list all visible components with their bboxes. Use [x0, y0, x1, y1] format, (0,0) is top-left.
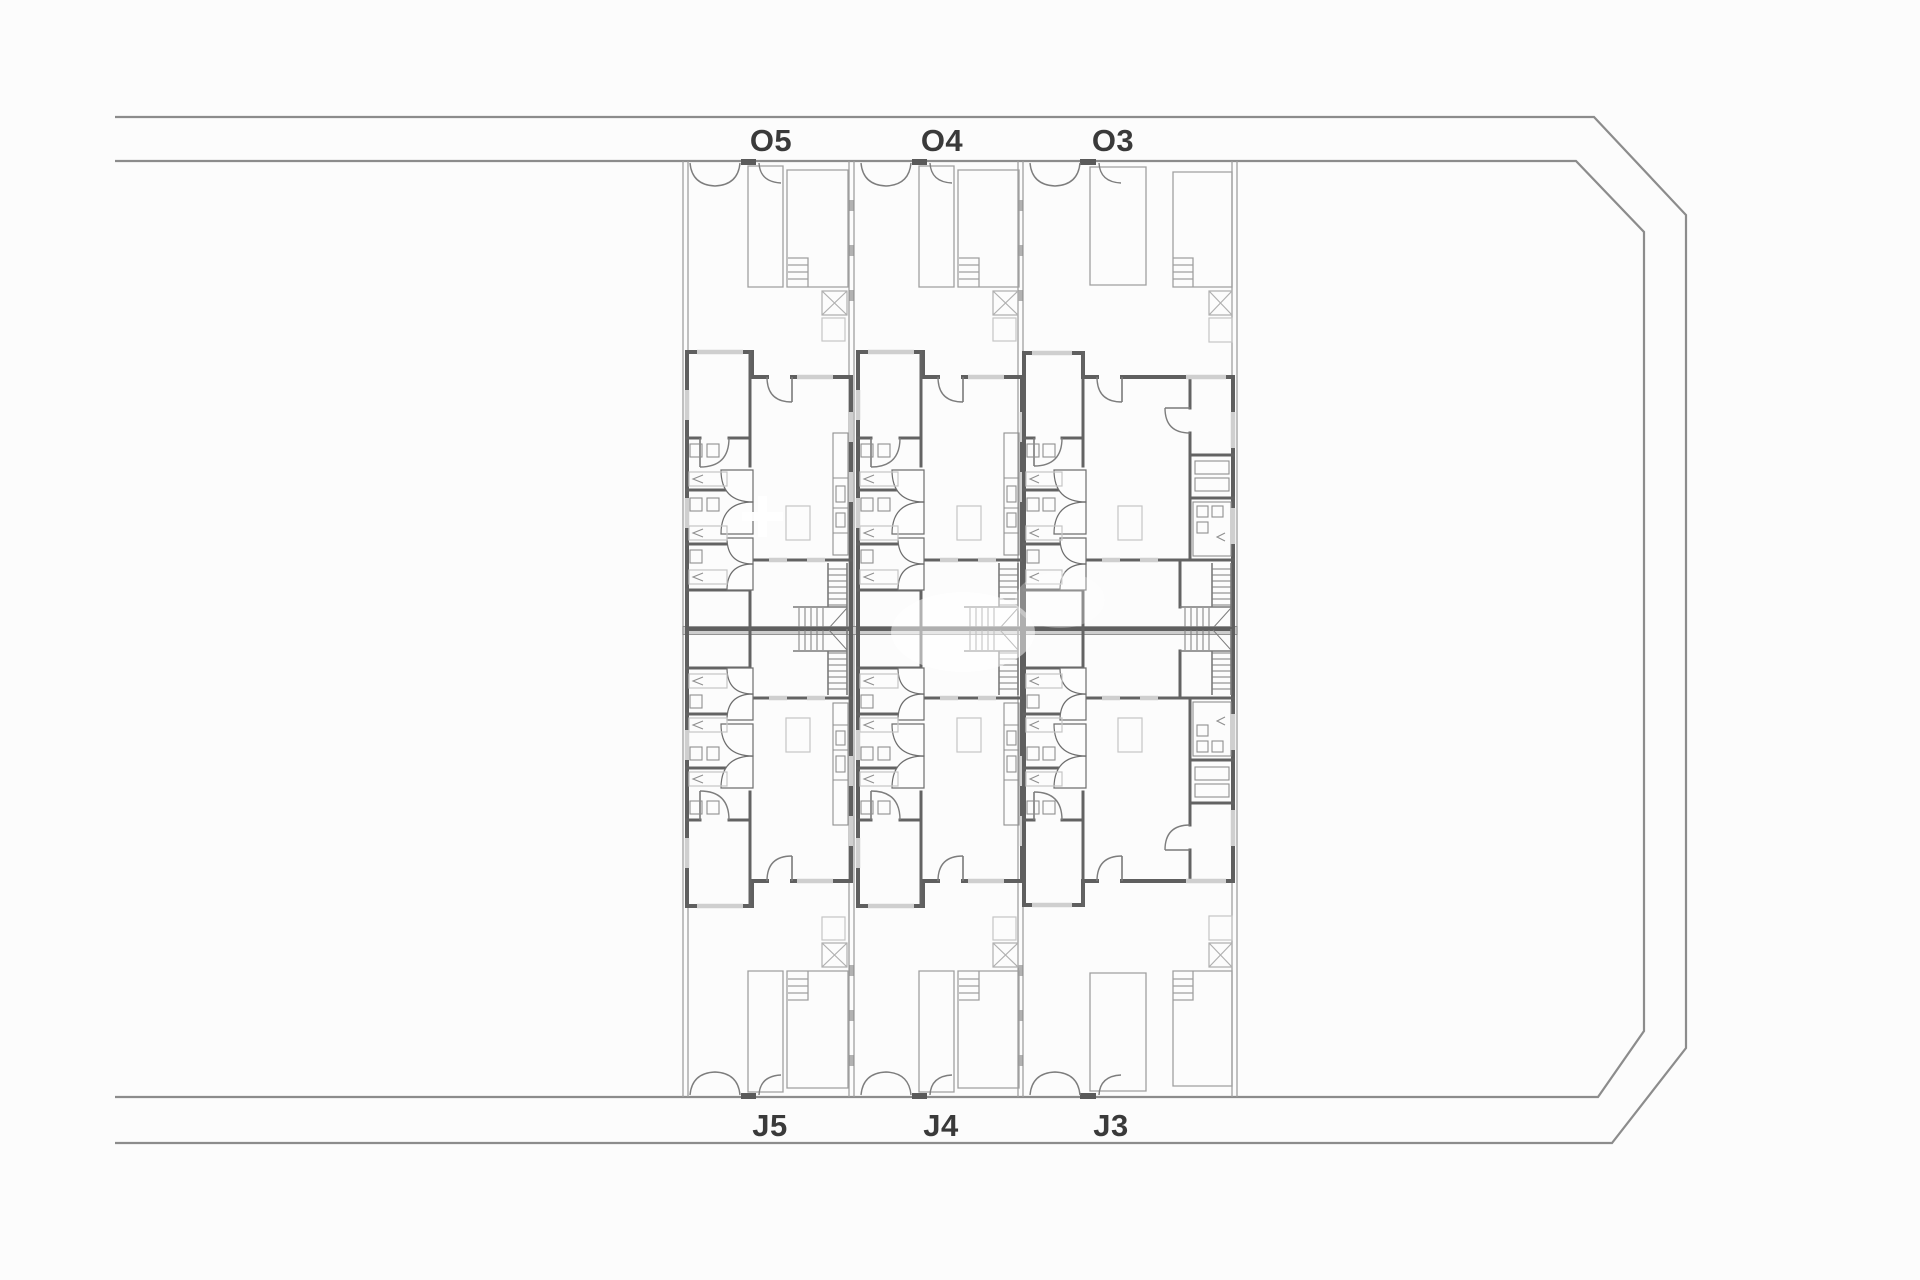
floor-plan-page: O5 O4 O3 J5 J4 J3: [0, 0, 1920, 1280]
unit-label-j4: J4: [923, 1108, 959, 1143]
unit-label-o4: O4: [921, 123, 964, 158]
unit-label-o3: O3: [1092, 123, 1134, 158]
unit-label-o5: O5: [750, 123, 792, 158]
unit-label-j5: J5: [752, 1108, 787, 1143]
floor-plan: O5 O4 O3 J5 J4 J3: [0, 0, 1920, 1280]
unit-label-j3: J3: [1093, 1108, 1128, 1143]
